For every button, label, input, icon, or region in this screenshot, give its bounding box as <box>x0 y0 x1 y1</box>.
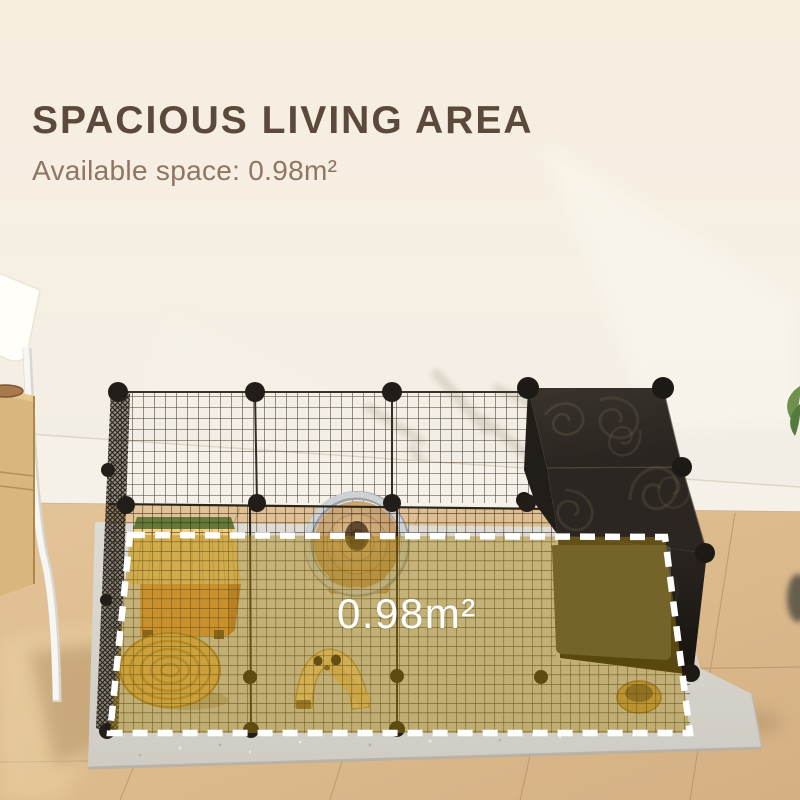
banner-title: SPACIOUS LIVING AREA <box>32 99 534 143</box>
playpen-back-mesh <box>108 392 540 503</box>
banner-subtitle: Available space: 0.98m² <box>32 155 337 187</box>
area-size-label: 0.98m² <box>337 590 477 638</box>
product-banner: SPACIOUS LIVING AREA Available space: 0.… <box>0 0 800 800</box>
wooden-plate <box>0 385 23 397</box>
side-table <box>0 385 34 596</box>
